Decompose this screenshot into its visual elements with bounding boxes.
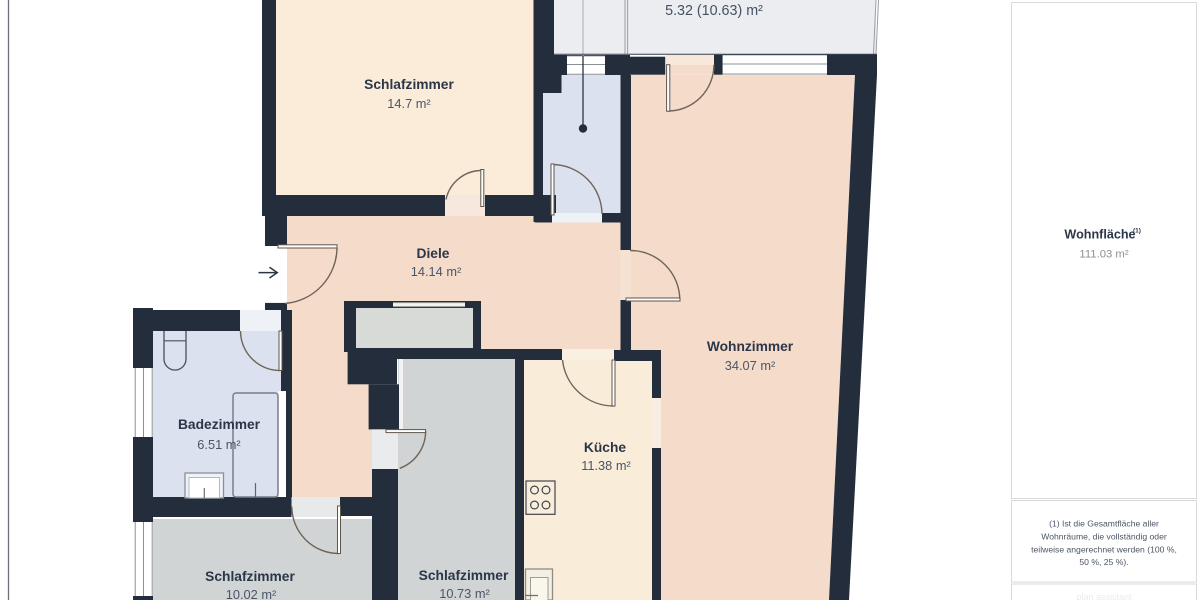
svg-text:6.51 m²: 6.51 m² xyxy=(197,437,241,452)
svg-text:Schlafzimmer: Schlafzimmer xyxy=(419,568,509,583)
svg-text:Wohnräume, die vollständig ode: Wohnräume, die vollständig oder xyxy=(1041,532,1167,542)
svg-text:14.7 m²: 14.7 m² xyxy=(387,96,431,111)
svg-text:(1): (1) xyxy=(1133,228,1141,235)
svg-text:5.32 (10.63) m²: 5.32 (10.63) m² xyxy=(665,3,763,19)
svg-text:34.07 m²: 34.07 m² xyxy=(725,358,776,373)
svg-text:14.14 m²: 14.14 m² xyxy=(411,264,462,279)
svg-text:Wohnzimmer: Wohnzimmer xyxy=(707,339,794,354)
svg-text:Wohnfläche: Wohnfläche xyxy=(1064,228,1135,242)
svg-text:Küche: Küche xyxy=(584,440,626,455)
svg-text:teilweise angerechnet werden (: teilweise angerechnet werden (100 %, xyxy=(1031,545,1177,555)
svg-text:11.38 m²: 11.38 m² xyxy=(581,458,631,473)
svg-text:(1) Ist die Gesamtfläche aller: (1) Ist die Gesamtfläche aller xyxy=(1049,519,1159,529)
svg-text:Diele: Diele xyxy=(417,246,450,261)
svg-text:Badezimmer: Badezimmer xyxy=(178,417,261,432)
svg-text:Schlafzimmer: Schlafzimmer xyxy=(205,569,295,584)
svg-text:plan assistant: plan assistant xyxy=(1076,592,1132,600)
svg-text:Schlafzimmer: Schlafzimmer xyxy=(364,77,454,92)
svg-text:111.03 m²: 111.03 m² xyxy=(1079,249,1128,261)
svg-text:10.02 m²: 10.02 m² xyxy=(226,587,277,600)
svg-text:10.73 m²: 10.73 m² xyxy=(439,586,490,600)
svg-text:50 %, 25 %).: 50 %, 25 %). xyxy=(1079,557,1128,567)
